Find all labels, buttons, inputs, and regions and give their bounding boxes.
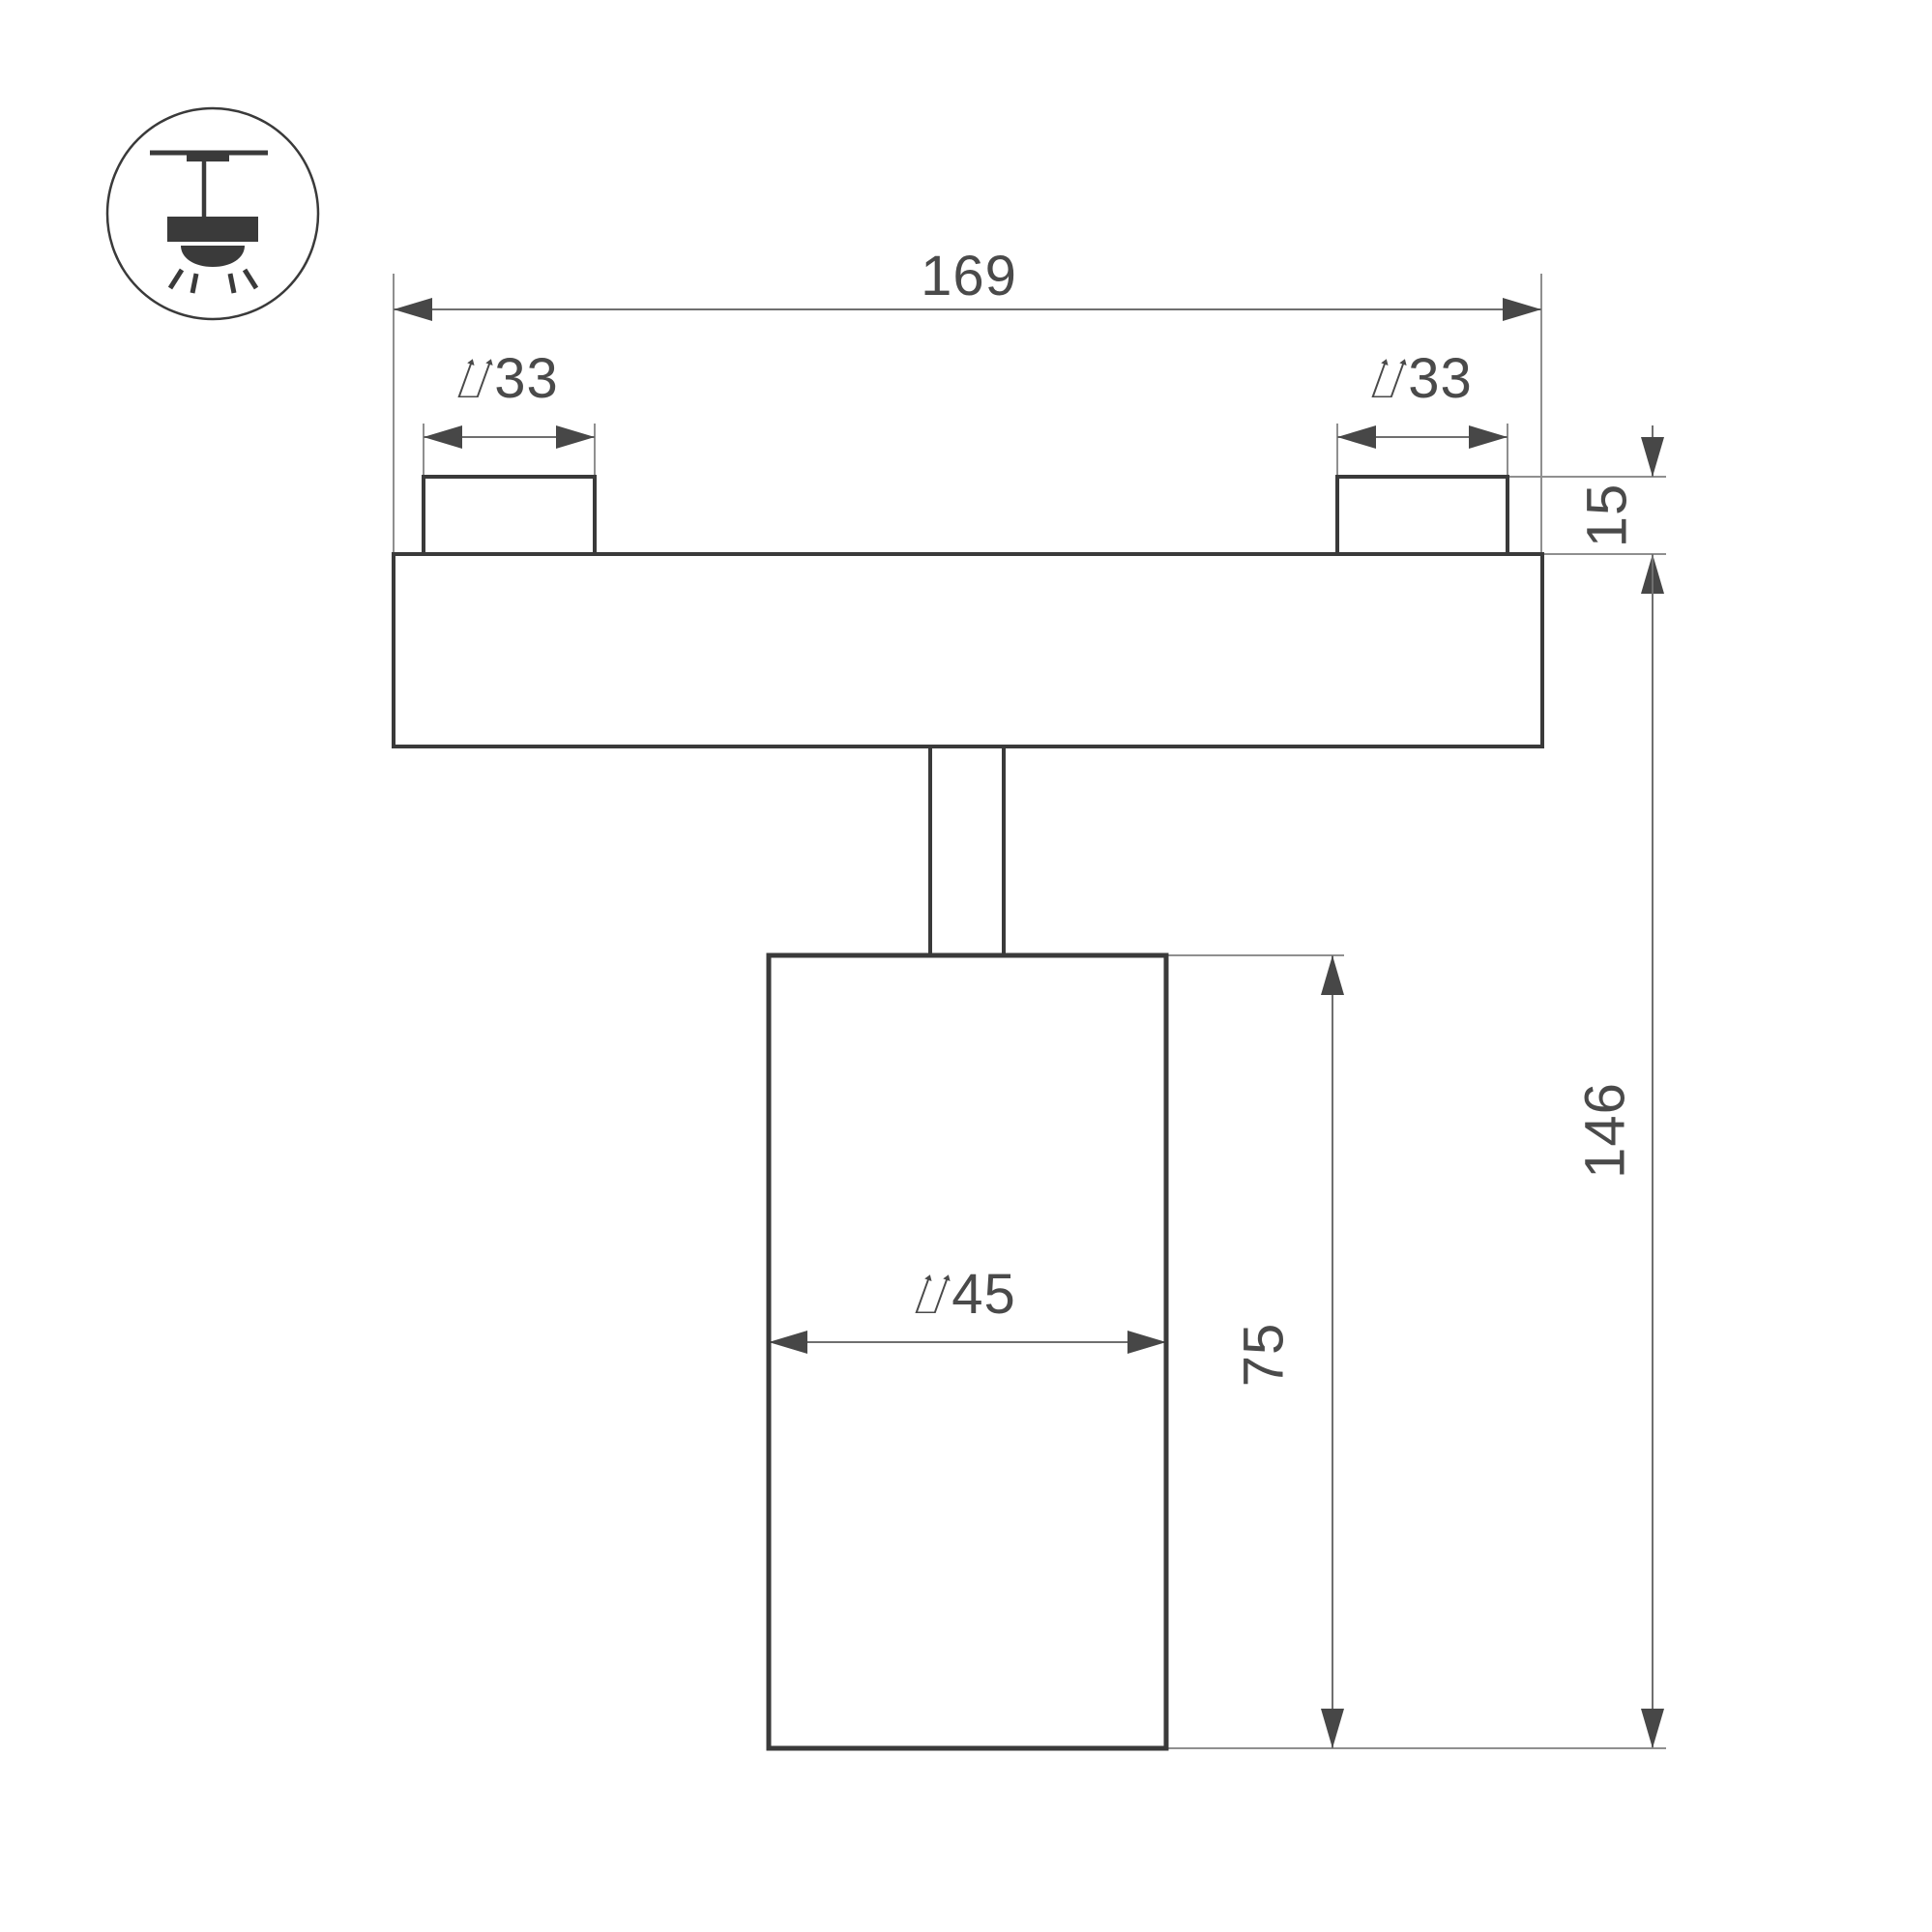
dimensions: 169 ⌰33 ⌰33 15 xyxy=(394,245,1666,1748)
dim-label-overall-width: 169 xyxy=(921,245,1017,307)
dim-connector-height: 15 xyxy=(1509,425,1666,594)
stem xyxy=(930,746,1004,955)
product-dimension-drawing: 169 ⌰33 ⌰33 15 xyxy=(0,0,1932,1932)
arrowhead-left xyxy=(1337,425,1376,449)
icon-light-rays xyxy=(170,270,256,293)
icon-circle xyxy=(107,108,318,319)
icon-light-dome xyxy=(181,246,245,267)
arrowhead-down xyxy=(1641,1709,1664,1748)
icon-lamp-body xyxy=(167,217,258,242)
dim-label-overall-height: 146 xyxy=(1574,1082,1637,1179)
dim-overall-width: 169 xyxy=(394,245,1541,552)
arrowhead-left xyxy=(394,298,432,321)
arrowhead-right xyxy=(1127,1331,1166,1354)
dim-label-body-diameter: ⌰45 xyxy=(914,1263,1015,1326)
arrowhead-down xyxy=(1641,437,1664,477)
fixture-outline xyxy=(394,477,1542,1748)
icon-track-adapter xyxy=(187,153,229,161)
arrowhead-left xyxy=(769,1331,807,1354)
arrowhead-down xyxy=(1321,1709,1344,1748)
dim-overall-height: 146 xyxy=(1168,554,1666,1748)
right-track-connector xyxy=(1337,477,1508,554)
dim-label-body-height: 75 xyxy=(1233,1323,1296,1388)
arrowhead-left xyxy=(424,425,462,449)
dim-right-connector-diameter: ⌰33 xyxy=(1337,347,1508,475)
lamp-body-cylinder xyxy=(769,955,1166,1748)
dim-body-diameter: ⌰45 xyxy=(769,1263,1166,1354)
dim-label-right-connector-diameter: ⌰33 xyxy=(1370,347,1472,410)
drawing-canvas: 169 ⌰33 ⌰33 15 xyxy=(0,0,1932,1932)
arrowhead-up xyxy=(1321,955,1344,995)
dim-label-connector-height: 15 xyxy=(1576,483,1639,548)
dim-body-height: 75 xyxy=(1168,955,1344,1748)
ceiling-track-pendant-light-icon xyxy=(107,108,318,319)
left-track-connector xyxy=(424,477,595,554)
arrowhead-right xyxy=(1503,298,1541,321)
track-base-plate xyxy=(394,554,1542,746)
arrowhead-right xyxy=(556,425,595,449)
dim-label-left-connector-diameter: ⌰33 xyxy=(456,347,558,410)
dim-left-connector-diameter: ⌰33 xyxy=(424,347,595,475)
arrowhead-right xyxy=(1469,425,1508,449)
